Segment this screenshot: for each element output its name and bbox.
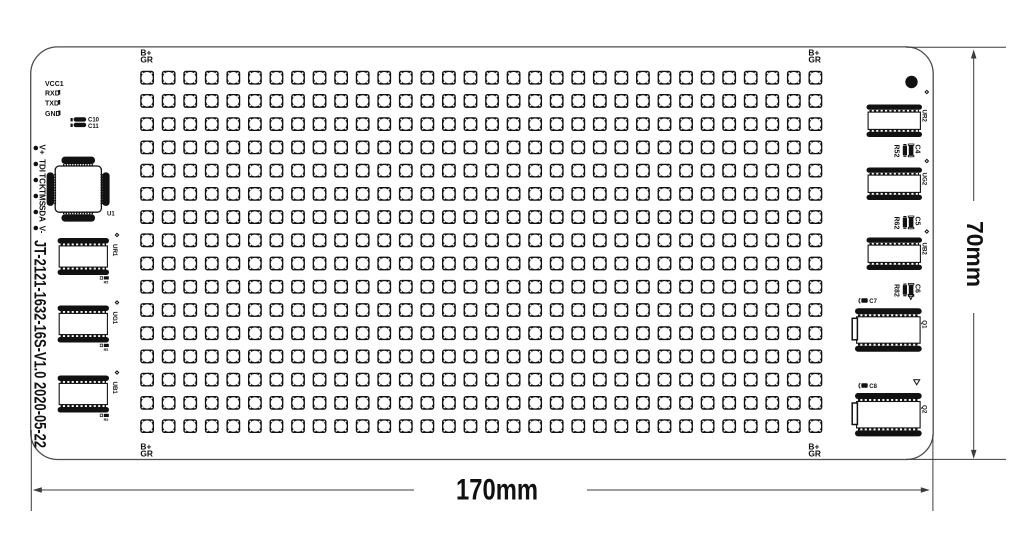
- svg-text:R62: R62: [893, 217, 900, 230]
- svg-text:UR2: UR2: [920, 110, 927, 123]
- svg-text:R52: R52: [893, 145, 900, 158]
- svg-text:UB1: UB1: [111, 382, 118, 395]
- svg-text:C11: C11: [88, 124, 99, 130]
- svg-text:UR1: UR1: [111, 244, 118, 257]
- svg-text:C8: C8: [869, 384, 877, 390]
- svg-text:R5: R5: [104, 418, 109, 422]
- svg-text:R82: R82: [893, 284, 900, 297]
- svg-text:R5: R5: [104, 281, 109, 285]
- svg-text:70mm: 70mm: [962, 221, 988, 287]
- svg-text:Q1: Q1: [920, 320, 927, 329]
- svg-text:C5: C5: [914, 217, 921, 226]
- svg-text:SDA: SDA: [38, 205, 47, 222]
- svg-text:Q2: Q2: [920, 405, 927, 414]
- svg-text:TDI: TDI: [38, 159, 47, 172]
- svg-text:U1: U1: [107, 212, 115, 218]
- svg-text:UG1: UG1: [111, 312, 118, 325]
- svg-text:TXD: TXD: [45, 101, 59, 108]
- svg-text:GND: GND: [45, 111, 61, 118]
- svg-text:TCK: TCK: [38, 173, 47, 190]
- svg-text:C6: C6: [914, 284, 921, 293]
- svg-text:C7: C7: [869, 299, 877, 305]
- svg-text:GR: GR: [140, 449, 153, 459]
- svg-text:R5: R5: [104, 348, 109, 352]
- svg-text:TMS: TMS: [38, 189, 47, 207]
- svg-text:C4: C4: [914, 145, 921, 154]
- svg-text:C10: C10: [88, 118, 100, 124]
- svg-text:VCC1: VCC1: [45, 81, 64, 88]
- svg-text:GR: GR: [140, 55, 153, 65]
- svg-text:JT-2121-1632-16S-V1.0 2020-05-: JT-2121-1632-16S-V1.0 2020-05-22: [31, 240, 49, 448]
- svg-text:RXD: RXD: [45, 91, 60, 98]
- svg-text:UB2: UB2: [920, 243, 927, 256]
- svg-text:GR: GR: [808, 55, 821, 65]
- svg-text:170mm: 170mm: [456, 474, 538, 507]
- svg-text:UG2: UG2: [920, 173, 927, 186]
- svg-text:GR: GR: [808, 449, 821, 459]
- svg-text:V+: V+: [38, 144, 47, 154]
- svg-text:V-: V-: [38, 226, 47, 234]
